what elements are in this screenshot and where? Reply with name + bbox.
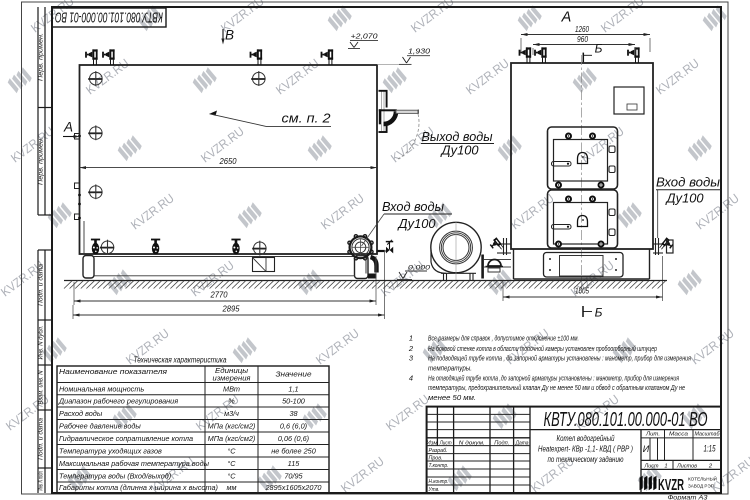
svg-text:На подводящей трубе котла ,: На подводящей трубе котла , до запорной … bbox=[428, 354, 691, 363]
svg-text:КВТУ.080.101.00.000-01 ВО: КВТУ.080.101.00.000-01 ВО bbox=[55, 8, 163, 25]
svg-text:Утв.: Утв. bbox=[428, 487, 440, 493]
svg-text:Рабочее давление воды: Рабочее давление воды bbox=[59, 421, 141, 430]
svg-text:0.000: 0.000 bbox=[408, 265, 430, 272]
svg-text:температуры.: температуры. bbox=[428, 364, 472, 373]
svg-text:МВт: МВт bbox=[223, 384, 240, 393]
svg-text:Лит.: Лит. bbox=[645, 432, 660, 438]
svg-text:Масштаб: Масштаб bbox=[695, 432, 721, 438]
svg-text:70/95: 70/95 bbox=[284, 471, 303, 480]
svg-text:115: 115 bbox=[288, 459, 301, 468]
svg-text:Температура воды (Вход/выход): Температура воды (Вход/выход) bbox=[59, 471, 171, 480]
svg-text:Максимальная рабочая температу: Максимальная рабочая температура воды bbox=[59, 459, 210, 468]
svg-text:1,930: 1,930 bbox=[408, 49, 430, 56]
svg-text:В: В bbox=[225, 28, 234, 43]
svg-text:Масса: Масса bbox=[669, 432, 689, 438]
svg-text:Подп.: Подп. bbox=[494, 440, 509, 446]
svg-text:Подп. и дата: Подп. и дата bbox=[39, 417, 45, 460]
svg-text:Диапазон рабочего регулировани: Диапазон рабочего регулирования bbox=[58, 397, 178, 406]
svg-text:Формат А3: Формат А3 bbox=[668, 495, 708, 500]
svg-text:Листов: Листов bbox=[676, 464, 697, 470]
svg-text:1605: 1605 bbox=[575, 287, 589, 296]
svg-text:Значение: Значение bbox=[276, 370, 312, 379]
svg-text:50-100: 50-100 bbox=[282, 397, 305, 406]
svg-text:менее 50 мм.: менее 50 мм. bbox=[428, 393, 476, 402]
svg-text:Пров.: Пров. bbox=[429, 455, 443, 461]
svg-text:А: А bbox=[561, 10, 572, 26]
svg-text:Изм: Изм bbox=[427, 440, 438, 446]
svg-text:1260: 1260 bbox=[575, 25, 590, 34]
svg-text:Температура уходящих газов: Температура уходящих газов bbox=[59, 446, 162, 455]
svg-text:Инв. N дубл.: Инв. N дубл. bbox=[39, 326, 45, 360]
svg-text:измерения: измерения bbox=[213, 374, 251, 383]
svg-text:мм: мм bbox=[226, 483, 236, 492]
svg-text:38: 38 bbox=[289, 409, 298, 418]
svg-text:Гидравлическое сопративление к: Гидравлическое сопративление котла bbox=[59, 434, 193, 443]
svg-text:по техническому заданию: по техническому заданию bbox=[548, 455, 624, 464]
svg-text:4: 4 bbox=[409, 373, 413, 382]
svg-text:Дата: Дата bbox=[515, 440, 529, 446]
svg-text:°С: °С bbox=[227, 471, 236, 480]
svg-text:не более 250: не более 250 bbox=[271, 446, 316, 455]
svg-text:Перв. примен.: Перв. примен. bbox=[39, 33, 45, 81]
svg-text:Взам. инв. N: Взам. инв. N bbox=[39, 370, 45, 405]
svg-text:Ду100: Ду100 bbox=[665, 191, 705, 206]
svg-text:Разраб.: Разраб. bbox=[429, 448, 448, 454]
svg-text:Вход воды: Вход воды bbox=[656, 175, 720, 190]
svg-text:Лист: Лист bbox=[644, 464, 659, 470]
svg-text:Б: Б bbox=[595, 42, 603, 56]
svg-text:°С: °С bbox=[227, 459, 236, 468]
svg-text:Ду100: Ду100 bbox=[440, 143, 480, 158]
svg-text:960: 960 bbox=[577, 35, 589, 44]
svg-text:1: 1 bbox=[664, 464, 667, 470]
svg-text:0,06 (0,6): 0,06 (0,6) bbox=[278, 434, 309, 443]
svg-text:N докум.: N докум. bbox=[459, 440, 485, 446]
svg-text:1,1: 1,1 bbox=[288, 384, 298, 393]
svg-text:м3/ч: м3/ч bbox=[224, 409, 239, 418]
svg-text:Номинальная мощность: Номинальная мощность bbox=[59, 384, 144, 393]
svg-text:КОТЕЛЬНЫЙ: КОТЕЛЬНЫЙ bbox=[688, 475, 717, 482]
svg-text:Все размеры для справок , допу: Все размеры для справок , допустимое отк… bbox=[428, 334, 579, 343]
svg-text:Котел водогрейный: Котел водогрейный bbox=[557, 434, 615, 443]
svg-text:Перв. примен.: Перв. примен. bbox=[39, 137, 45, 185]
svg-text:°С: °С bbox=[227, 446, 236, 455]
svg-text:Т.контр.: Т.контр. bbox=[429, 463, 449, 469]
svg-text:КВТУ.080.101.00.000-01 ВО: КВТУ.080.101.00.000-01 ВО bbox=[544, 409, 708, 431]
svg-text:Б: Б bbox=[595, 306, 603, 320]
svg-text:Инв. N подл.: Инв. N подл. bbox=[39, 471, 45, 491]
svg-text:На отводящей трубе котла ,до з: На отводящей трубе котла ,до запорной ар… bbox=[428, 373, 679, 382]
svg-text:Ду100: Ду100 bbox=[397, 216, 437, 231]
svg-text:МПа (кгс/см2): МПа (кгс/см2) bbox=[208, 421, 256, 430]
svg-text:Лист: Лист bbox=[439, 440, 452, 446]
svg-text:И: И bbox=[643, 444, 650, 454]
svg-text:Heatexpert- КВр -1,1- КВД ( РВ: Heatexpert- КВр -1,1- КВД ( РВР ) bbox=[538, 445, 633, 454]
svg-text:Наименование показателя: Наименование показателя bbox=[59, 367, 167, 376]
svg-text:Н.контр.: Н.контр. bbox=[429, 479, 449, 485]
svg-text:На боковой стенке котла в обла: На боковой стенке котла в области топочн… bbox=[428, 344, 657, 353]
svg-text:температуры, предохранительный: температуры, предохранительный клапан Ду… bbox=[428, 383, 685, 392]
svg-text:%: % bbox=[228, 397, 235, 406]
svg-text:1:15: 1:15 bbox=[704, 444, 717, 454]
svg-text:Габариты котла (длинна х ширин: Габариты котла (длинна х ширина х высота… bbox=[59, 483, 218, 492]
svg-text:см. п. 2: см. п. 2 bbox=[282, 111, 332, 126]
svg-text:Вход воды: Вход воды bbox=[382, 199, 444, 214]
svg-text:1: 1 bbox=[409, 334, 413, 343]
svg-text:2895: 2895 bbox=[222, 305, 240, 314]
svg-text:2770: 2770 bbox=[210, 291, 228, 300]
svg-text:Техническая характеристика: Техническая характеристика bbox=[134, 356, 227, 365]
svg-text:ЗАВОД РЭП: ЗАВОД РЭП bbox=[688, 484, 714, 489]
svg-text:2: 2 bbox=[408, 344, 414, 353]
svg-text:0,6 (6,0): 0,6 (6,0) bbox=[280, 421, 307, 430]
svg-text:МПа (кгс/см2): МПа (кгс/см2) bbox=[208, 434, 256, 443]
svg-text:2650: 2650 bbox=[219, 157, 237, 166]
svg-text:Подп. и дата: Подп. и дата bbox=[39, 263, 45, 306]
svg-text:2895х1605х2070: 2895х1605х2070 bbox=[265, 483, 322, 492]
svg-text:+2,070: +2,070 bbox=[351, 34, 378, 41]
svg-text:KVZR: KVZR bbox=[658, 477, 684, 494]
svg-text:Расход воды: Расход воды bbox=[59, 409, 103, 418]
svg-text:А: А bbox=[63, 120, 73, 135]
